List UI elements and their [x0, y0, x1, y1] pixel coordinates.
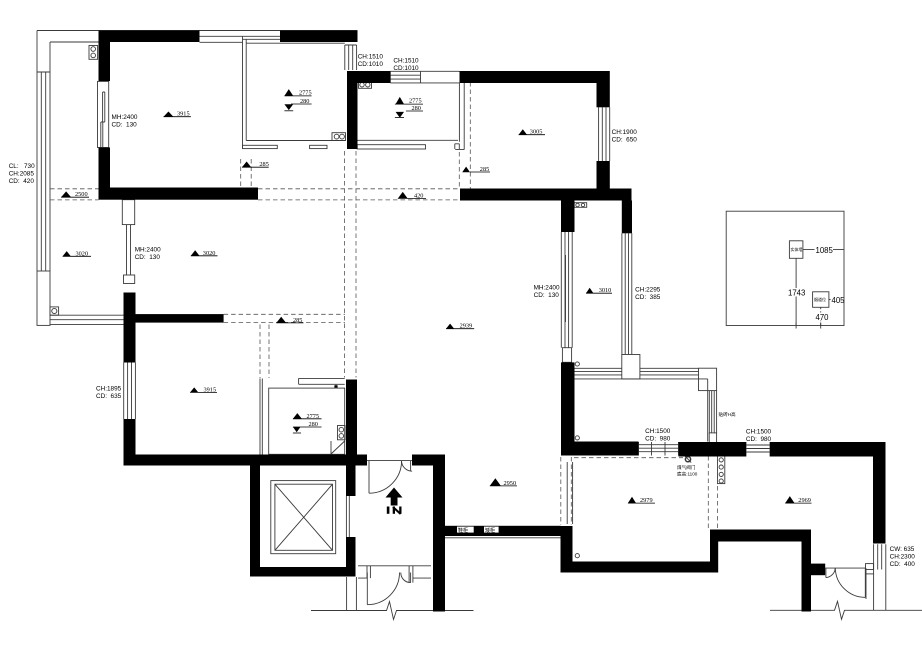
svg-text:3020: 3020 — [76, 250, 89, 257]
svg-text:2979: 2979 — [640, 497, 653, 504]
svg-text:底高:1100: 底高:1100 — [677, 471, 698, 478]
svg-text:CD:1010: CD:1010 — [358, 61, 384, 68]
svg-text:CD: 635: CD: 635 — [96, 393, 122, 400]
svg-text:285: 285 — [480, 166, 489, 173]
svg-text:1085: 1085 — [816, 246, 834, 255]
svg-text:CD: 130: CD: 130 — [112, 122, 138, 129]
svg-text:3010: 3010 — [599, 287, 612, 294]
svg-text:贴砖H高: 贴砖H高 — [719, 411, 737, 418]
svg-text:CD: 420: CD: 420 — [9, 178, 35, 185]
svg-text:405: 405 — [832, 296, 846, 305]
svg-text:CD: 385: CD: 385 — [635, 294, 661, 301]
svg-text:CH:1510: CH:1510 — [358, 54, 384, 61]
svg-text:285: 285 — [259, 161, 268, 168]
svg-text:2939: 2939 — [460, 323, 473, 330]
svg-text:CD: 980: CD: 980 — [746, 436, 772, 443]
svg-text:CD: 650: CD: 650 — [612, 137, 638, 144]
svg-text:CH:2300: CH:2300 — [890, 554, 916, 561]
svg-text:2775: 2775 — [409, 98, 422, 105]
svg-text:CH:1900: CH:1900 — [612, 129, 638, 136]
svg-text:2500: 2500 — [75, 191, 88, 198]
svg-text:3915: 3915 — [204, 386, 217, 393]
svg-text:3020: 3020 — [203, 250, 216, 257]
svg-text:280: 280 — [412, 105, 421, 112]
svg-text:2969: 2969 — [798, 497, 811, 504]
svg-text:3005: 3005 — [530, 129, 543, 136]
svg-text:矮柜: 矮柜 — [485, 527, 495, 534]
svg-text:470: 470 — [816, 313, 830, 322]
svg-text:2950: 2950 — [504, 480, 517, 487]
svg-text:420: 420 — [414, 192, 423, 199]
svg-text:MH:2400: MH:2400 — [112, 114, 138, 121]
svg-text:实体墙: 实体墙 — [791, 246, 803, 252]
svg-text:CD:1010: CD:1010 — [393, 65, 419, 72]
svg-text:CL: 730: CL: 730 — [9, 163, 35, 170]
svg-text:MH:2400: MH:2400 — [534, 285, 560, 292]
svg-text:CD: 130: CD: 130 — [135, 254, 161, 261]
svg-text:3915: 3915 — [177, 111, 190, 118]
svg-text:CD: 130: CD: 130 — [534, 292, 560, 299]
svg-text:CH:1895: CH:1895 — [96, 386, 122, 393]
svg-text:280: 280 — [309, 421, 318, 428]
svg-text:CD: 400: CD: 400 — [890, 561, 916, 568]
svg-text:CD: 980: CD: 980 — [645, 436, 671, 443]
svg-text:鞋柜: 鞋柜 — [458, 527, 468, 534]
svg-text:CH:1510: CH:1510 — [393, 58, 419, 65]
svg-text:280: 280 — [300, 98, 309, 105]
svg-text:CH:2295: CH:2295 — [635, 287, 661, 294]
svg-text:1743: 1743 — [788, 289, 805, 298]
svg-text:2775: 2775 — [307, 413, 320, 420]
svg-text:CH:1500: CH:1500 — [645, 428, 671, 435]
svg-text:CH:1500: CH:1500 — [746, 429, 772, 436]
svg-text:MH:2400: MH:2400 — [135, 247, 161, 254]
svg-text:CW: 635: CW: 635 — [890, 546, 915, 553]
svg-text:煤气阀门: 煤气阀门 — [677, 464, 696, 471]
svg-text:285: 285 — [293, 317, 302, 324]
svg-text:烟道位: 烟道位 — [814, 296, 826, 302]
svg-text:CH:2085: CH:2085 — [9, 171, 35, 178]
svg-text:2775: 2775 — [299, 89, 312, 96]
